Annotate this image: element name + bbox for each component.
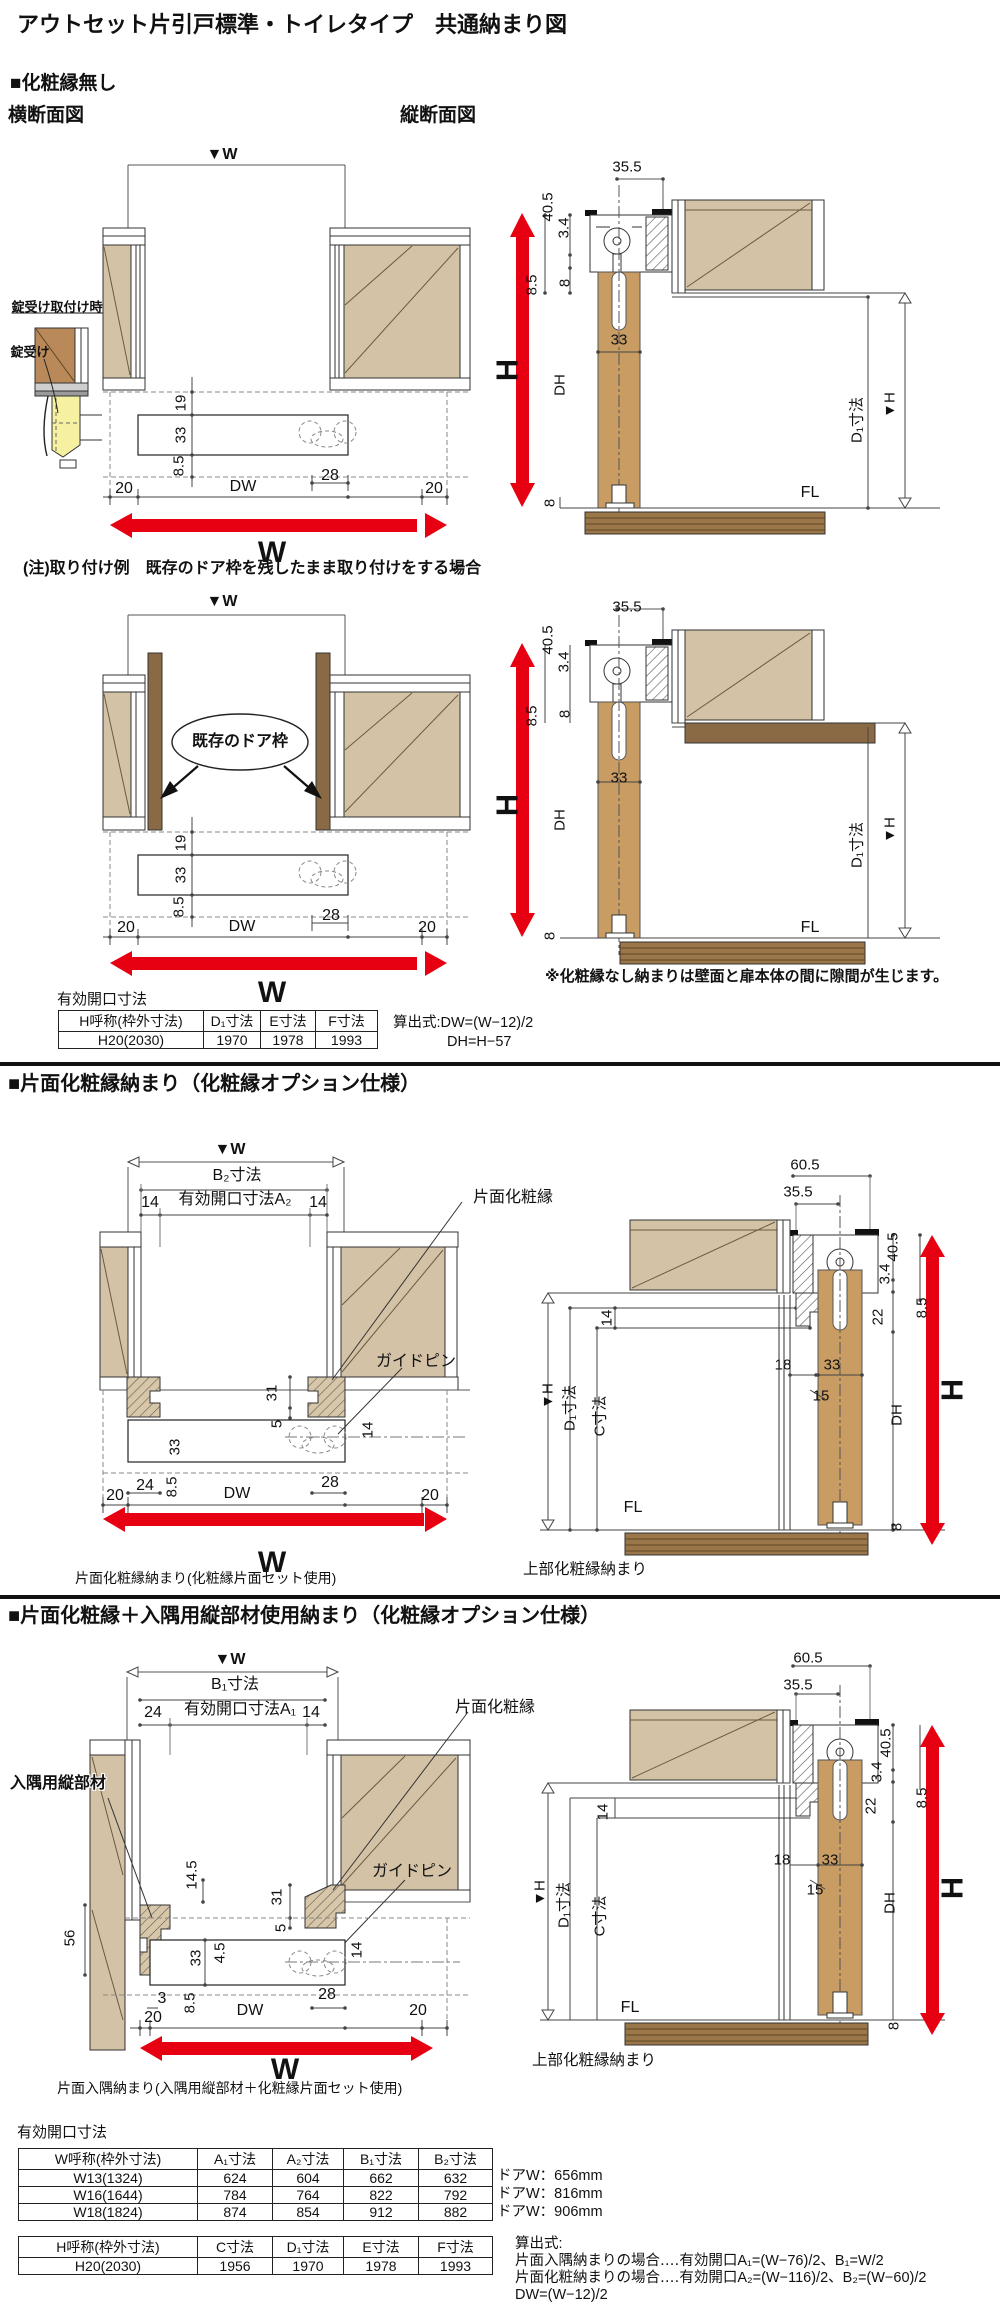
dim-h-marker: ▼H [883,817,898,843]
dim-h-total: H [937,1877,968,1899]
dim-a1-opening: 有効開口寸法A₁ [184,1702,296,1718]
dim-d1: D₁寸法 [850,822,865,868]
corner-member-label: 入隅用縦部材 [10,1775,106,1793]
dim-8-5: 8.5 [915,1788,930,1809]
dim-19: 19 [174,835,189,852]
col-header: F寸法 [316,1011,378,1032]
col-header: B₂寸法 [419,2149,493,2170]
page-title: アウトセット片引戸標準・トイレタイプ 共通納まり図 [17,12,567,37]
floor-level-label: FL [621,2000,640,2016]
dim-33: 33 [611,771,628,786]
dim-8-top: 8 [558,710,573,718]
cell: 764 [273,2187,344,2204]
document-page: アウトセット片引戸標準・トイレタイプ 共通納まり図 ■化粧縁無し 横断面図 縦断… [0,0,1000,2318]
floor-level-label: FL [801,485,820,501]
dim-40-5: 40.5 [879,1728,894,1757]
col-header: A₂寸法 [273,2149,344,2170]
dim-18: 18 [774,1853,791,1868]
dim-33: 33 [174,867,189,884]
cell: 604 [273,2170,344,2187]
dim-b1: B₁寸法 [211,1677,259,1693]
section1-heading: ■化粧縁無し [10,73,116,95]
dim-20-left: 20 [117,920,135,936]
plan-section-existing-frame-drawing [0,590,500,1015]
dim-18: 18 [775,1358,792,1373]
existing-frame-callout: 既存のドア枠 [192,734,288,750]
dim-33: 33 [168,1439,183,1456]
dim-8: 8 [887,2022,902,2030]
table1-title: 有効開口寸法 [57,991,147,1008]
installation-note: (注)取り付け例 既存のドア枠を残したまま取り付けをする場合 [23,560,481,578]
dim-3-4: 3.4 [878,1264,893,1285]
dim-20-right: 20 [418,920,436,936]
dim-15: 15 [807,1883,824,1898]
dim-60-5: 60.5 [793,1651,822,1666]
cell: 822 [344,2187,419,2204]
cell: 912 [344,2204,419,2221]
floor-level-label: FL [624,1500,643,1516]
dim-14-left: 14 [141,1195,159,1211]
cell: H20(2030) [19,2258,198,2275]
cell: 1956 [198,2258,273,2275]
cell: 874 [198,2204,273,2221]
table-row: W13(1324) 624 604 662 632 [19,2170,493,2187]
dim-28: 28 [321,468,339,484]
guide-pin-label: ガイドピン [376,1354,456,1370]
dim-20-left: 20 [106,1488,124,1504]
opening-height-table: H呼称(枠外寸法) C寸法 D₁寸法 E寸法 F寸法 H20(2030) 195… [18,2236,493,2275]
section3-heading: ■片面化粧縁＋入隅用縦部材使用納まり（化粧縁オプション仕様） [8,1605,600,1628]
dim-20-right: 20 [421,1488,439,1504]
calc-formula-title: 算出式: [515,2236,563,2253]
dim-33: 33 [822,1853,839,1868]
calc-formula-dw: DW=(W−12)/2 [515,2287,608,2304]
cell: 1970 [204,1032,261,1049]
dim-h-total: H [492,794,523,816]
dim-14-right: 14 [302,1705,320,1721]
dim-14-pin: 14 [361,1422,376,1439]
dim-dh: DH [553,809,568,831]
one-side-trim-label: 片面化粧縁 [473,1190,553,1206]
cell: 854 [273,2204,344,2221]
cell: 882 [419,2204,493,2221]
dim-40-5: 40.5 [541,192,556,221]
dim-h-total: H [492,359,523,381]
dim-w-marker: ▼W [207,147,238,163]
dim-31: 31 [270,1889,285,1906]
section-divider [0,1595,1000,1599]
cell: 662 [344,2170,419,2187]
floor-level-label: FL [801,920,820,936]
dim-3: 3 [158,1991,167,2007]
dim-8-5: 8.5 [165,1477,180,1498]
opening-width-table: W呼称(枠外寸法) A₁寸法 A₂寸法 B₁寸法 B₂寸法 W13(1324) … [18,2148,493,2221]
dim-a2-opening: 有効開口寸法A₂ [179,1192,292,1208]
dim-dw: DW [224,1486,251,1502]
formula-dh: DH=H−57 [447,1034,511,1051]
col-header: B₁寸法 [344,2149,419,2170]
dim-20-left: 20 [115,481,133,497]
dim-14-pin: 14 [350,1942,365,1959]
dim-20-right: 20 [409,2003,427,2019]
dim-33: 33 [611,333,628,348]
dim-5: 5 [270,1420,285,1428]
dim-h-marker: ▼H [541,1383,556,1409]
col-header: W呼称(枠外寸法) [19,2149,198,2170]
dim-20-left: 20 [144,2010,162,2026]
dim-28: 28 [322,908,340,924]
dim-w-marker: ▼W [207,594,238,610]
dim-h-total: H [937,1379,968,1401]
dim-35-5: 35.5 [612,600,641,615]
cell: H20(2030) [59,1032,204,1049]
dim-w-total: W [258,538,286,568]
dim-22: 22 [864,1798,879,1815]
section2-heading: ■片面化粧縁納まり（化粧縁オプション仕様） [8,1073,420,1096]
dim-h-marker: ▼H [883,392,898,418]
col-header: F寸法 [419,2237,493,2258]
dim-33: 33 [824,1358,841,1373]
cell: 632 [419,2170,493,2187]
dim-14: 14 [596,1804,611,1821]
dim-40-5: 40.5 [541,625,556,654]
dim-40-5: 40.5 [886,1232,901,1261]
dim-3-4: 3.4 [557,218,572,239]
dim-dw: DW [229,919,256,935]
dim-b2: B₂寸法 [213,1168,262,1184]
dim-w-marker: ▼W [215,1652,246,1668]
cell: 1978 [261,1032,316,1049]
col-header: D₁寸法 [273,2237,344,2258]
dim-8-5: 8.5 [172,897,187,918]
one-side-trim-label: 片面化粧縁 [455,1700,535,1716]
col-header: E寸法 [344,2237,419,2258]
col-header: H呼称(枠外寸法) [59,1011,204,1032]
table-row: W18(1824) 874 854 912 882 [19,2204,493,2221]
dim-24: 24 [144,1705,162,1721]
dim-d1: D₁寸法 [557,1882,572,1928]
cell: 1978 [344,2258,419,2275]
formula-dw: 算出式:DW=(W−12)/2 [393,1015,533,1032]
col-header: A₁寸法 [198,2149,273,2170]
dim-15: 15 [813,1389,830,1404]
cell: W18(1824) [19,2204,198,2221]
dim-22: 22 [871,1309,886,1326]
section-divider [0,1062,1000,1066]
dim-20-right: 20 [425,481,443,497]
red-height-arrow [510,643,535,937]
cell: 1993 [316,1032,378,1049]
dim-d1: D₁寸法 [563,1385,578,1431]
dim-8-bottom: 8 [543,499,558,507]
vertical-section-top-trim-drawing-2 [500,1630,1000,2085]
dim-8-5: 8.5 [525,275,540,296]
dim-8-5: 8.5 [172,456,187,477]
dim-8-5: 8.5 [525,706,540,727]
dim-w-marker: ▼W [215,1142,246,1158]
dim-28: 28 [318,1987,336,2003]
dim-35-5: 35.5 [783,1678,812,1693]
col-header: E寸法 [261,1011,316,1032]
door-w-note-3: ドアW：906mm [497,2204,603,2221]
table-row: H20(2030) 1956 1970 1978 1993 [19,2258,493,2275]
calc-formula-a1: 片面入隅納まりの場合‥‥有効開口A₁=(W−76)/2、B₁=W/2 [515,2253,884,2270]
red-width-arrow [110,951,447,976]
guide-pin-label: ガイドピン [372,1864,452,1880]
lock-receiver-label: 錠受け [10,346,49,359]
table-row: W16(1644) 784 764 822 792 [19,2187,493,2204]
vertical-section-top-trim-drawing [500,1140,1000,1595]
dim-31: 31 [265,1385,280,1402]
plan-section-no-trim-drawing [0,115,500,593]
dim-c: C寸法 [593,1396,608,1437]
dim-3-4: 3.4 [557,652,572,673]
cell: 784 [198,2187,273,2204]
dim-dh: DH [883,1892,898,1914]
dim-14: 14 [600,1310,615,1327]
dim-28: 28 [321,1475,339,1491]
dim-24: 24 [136,1478,154,1494]
caption-corner-trim: 片面入隅納まり(入隅用縦部材＋化粧縁片面セット使用) [57,2080,402,2096]
dim-8-top: 8 [558,279,573,287]
dim-19: 19 [174,395,189,412]
dim-14-5: 14.5 [185,1860,200,1889]
dim-35-5: 35.5 [783,1185,812,1200]
cell: 1970 [273,2258,344,2275]
cell: 792 [419,2187,493,2204]
dim-60-5: 60.5 [790,1158,819,1173]
dim-d1: D₁寸法 [850,397,865,443]
dim-h-marker: ▼H [533,1880,548,1906]
cell: W16(1644) [19,2187,198,2204]
cell: W13(1324) [19,2170,198,2187]
dim-8-5: 8.5 [915,1298,930,1319]
opening-dimension-table-1: H呼称(枠外寸法) D₁寸法 E寸法 F寸法 H20(2030) 1970 19… [58,1010,378,1049]
dim-w-total: W [258,978,286,1008]
door-w-note-1: ドアW：656mm [497,2168,603,2185]
red-width-arrow [110,513,447,538]
caption-one-side-trim: 片面化粧縁納まり(化粧縁片面セット使用) [75,1570,336,1586]
dim-8: 8 [890,1523,905,1531]
calc-formula-a2: 片面化粧納まりの場合‥‥有効開口A₂=(W−116)/2、B₂=(W−60)/2 [515,2270,926,2287]
dim-8-5: 8.5 [183,1993,198,2014]
dim-33: 33 [174,427,189,444]
door-w-note-2: ドアW：816mm [497,2186,603,2203]
dim-56: 56 [63,1930,78,1947]
dim-14-right: 14 [309,1195,327,1211]
col-header: D₁寸法 [204,1011,261,1032]
col-header: H呼称(枠外寸法) [19,2237,198,2258]
cell: 624 [198,2170,273,2187]
dim-dw: DW [230,479,257,495]
red-width-arrow [103,1507,447,1532]
dim-dh: DH [890,1404,905,1426]
caption-top-trim: 上部化粧縁納まり [523,1561,647,1579]
dim-4-5: 4.5 [213,1943,228,1964]
dim-8-bottom: 8 [543,932,558,940]
dim-33: 33 [189,1950,204,1967]
table-row: H20(2030) 1970 1978 1993 [59,1032,378,1049]
dim-dw: DW [237,2003,264,2019]
caption-top-trim: 上部化粧縁納まり [532,2052,656,2070]
lock-receiver-title: 錠受け取付け時 [11,301,102,314]
dim-c: C寸法 [593,1896,608,1937]
bottom-table-title: 有効開口寸法 [17,2124,107,2141]
vertical-section-no-trim-drawing [500,115,1000,585]
dim-5: 5 [274,1924,289,1932]
dim-dh: DH [553,374,568,396]
dim-35-5: 35.5 [612,160,641,175]
vertical-section-no-trim-drawing-2 [500,545,1000,977]
cell: 1993 [419,2258,493,2275]
dim-3-4: 3.4 [870,1762,885,1783]
col-header: C寸法 [198,2237,273,2258]
gap-note: ※化粧縁なし納まりは壁面と扉本体の間に隙間が生じます。 [545,968,948,985]
